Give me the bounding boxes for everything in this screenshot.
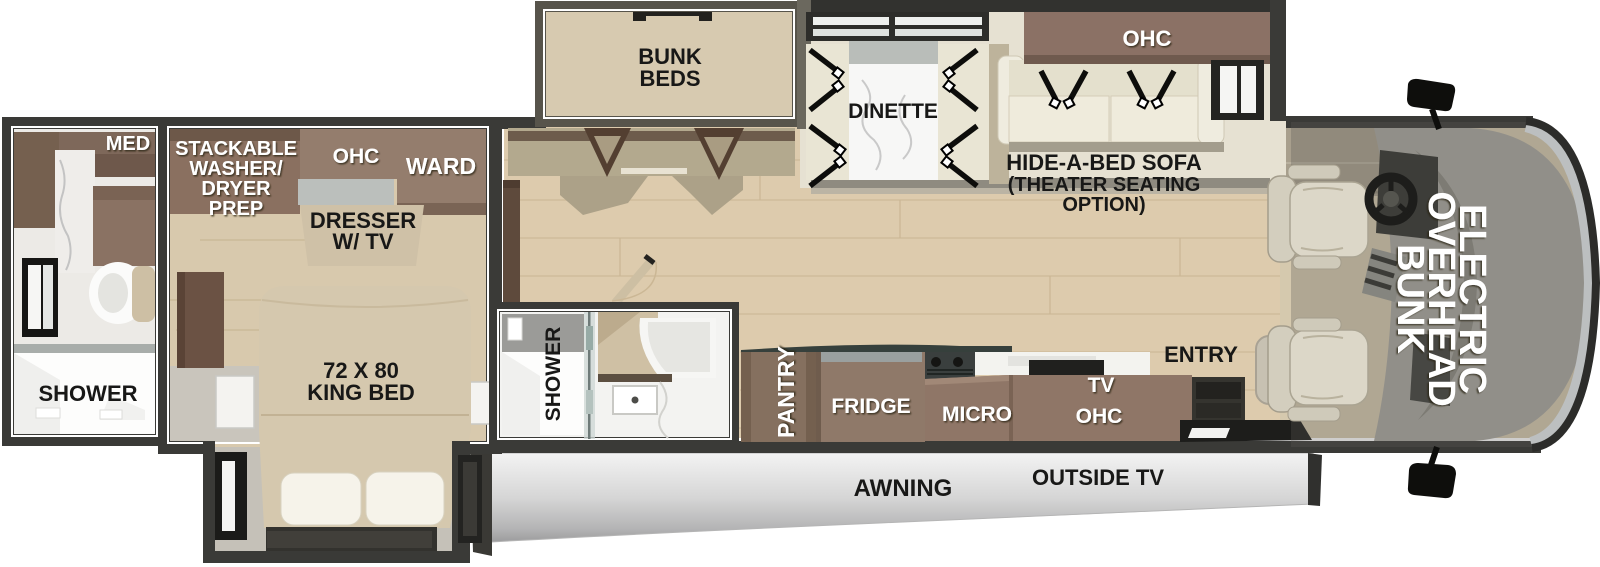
svg-text:PREP: PREP (209, 198, 263, 220)
svg-text:STACKABLE: STACKABLE (175, 138, 297, 160)
svg-text:FRIDGE: FRIDGE (831, 395, 910, 418)
svg-text:SHOWER: SHOWER (39, 381, 138, 406)
svg-text:DRYER: DRYER (201, 178, 271, 200)
svg-text:ENTRY: ENTRY (1164, 342, 1238, 367)
svg-text:MICRO: MICRO (942, 403, 1012, 426)
svg-text:OPTION): OPTION) (1062, 194, 1145, 216)
svg-text:BUNK: BUNK (1389, 244, 1431, 354)
svg-text:OHC: OHC (333, 145, 380, 168)
svg-text:MED: MED (106, 133, 150, 155)
svg-text:BEDS: BEDS (639, 66, 700, 91)
svg-text:OUTSIDE TV: OUTSIDE TV (1032, 465, 1164, 490)
svg-text:OHC: OHC (1123, 26, 1172, 51)
svg-text:OHC: OHC (1076, 405, 1123, 428)
svg-text:DINETTE: DINETTE (848, 100, 938, 123)
svg-text:HIDE-A-BED SOFA: HIDE-A-BED SOFA (1006, 150, 1202, 175)
svg-text:WARD: WARD (406, 153, 476, 179)
svg-text:PANTRY: PANTRY (773, 346, 799, 438)
svg-text:AWNING: AWNING (854, 475, 953, 502)
svg-text:TV: TV (1088, 374, 1115, 397)
svg-text:WASHER/: WASHER/ (189, 158, 283, 180)
svg-text:KING BED: KING BED (307, 380, 415, 405)
svg-text:W/ TV: W/ TV (332, 229, 393, 254)
svg-text:SHOWER: SHOWER (542, 327, 565, 422)
svg-text:(THEATER SEATING: (THEATER SEATING (1008, 174, 1201, 196)
